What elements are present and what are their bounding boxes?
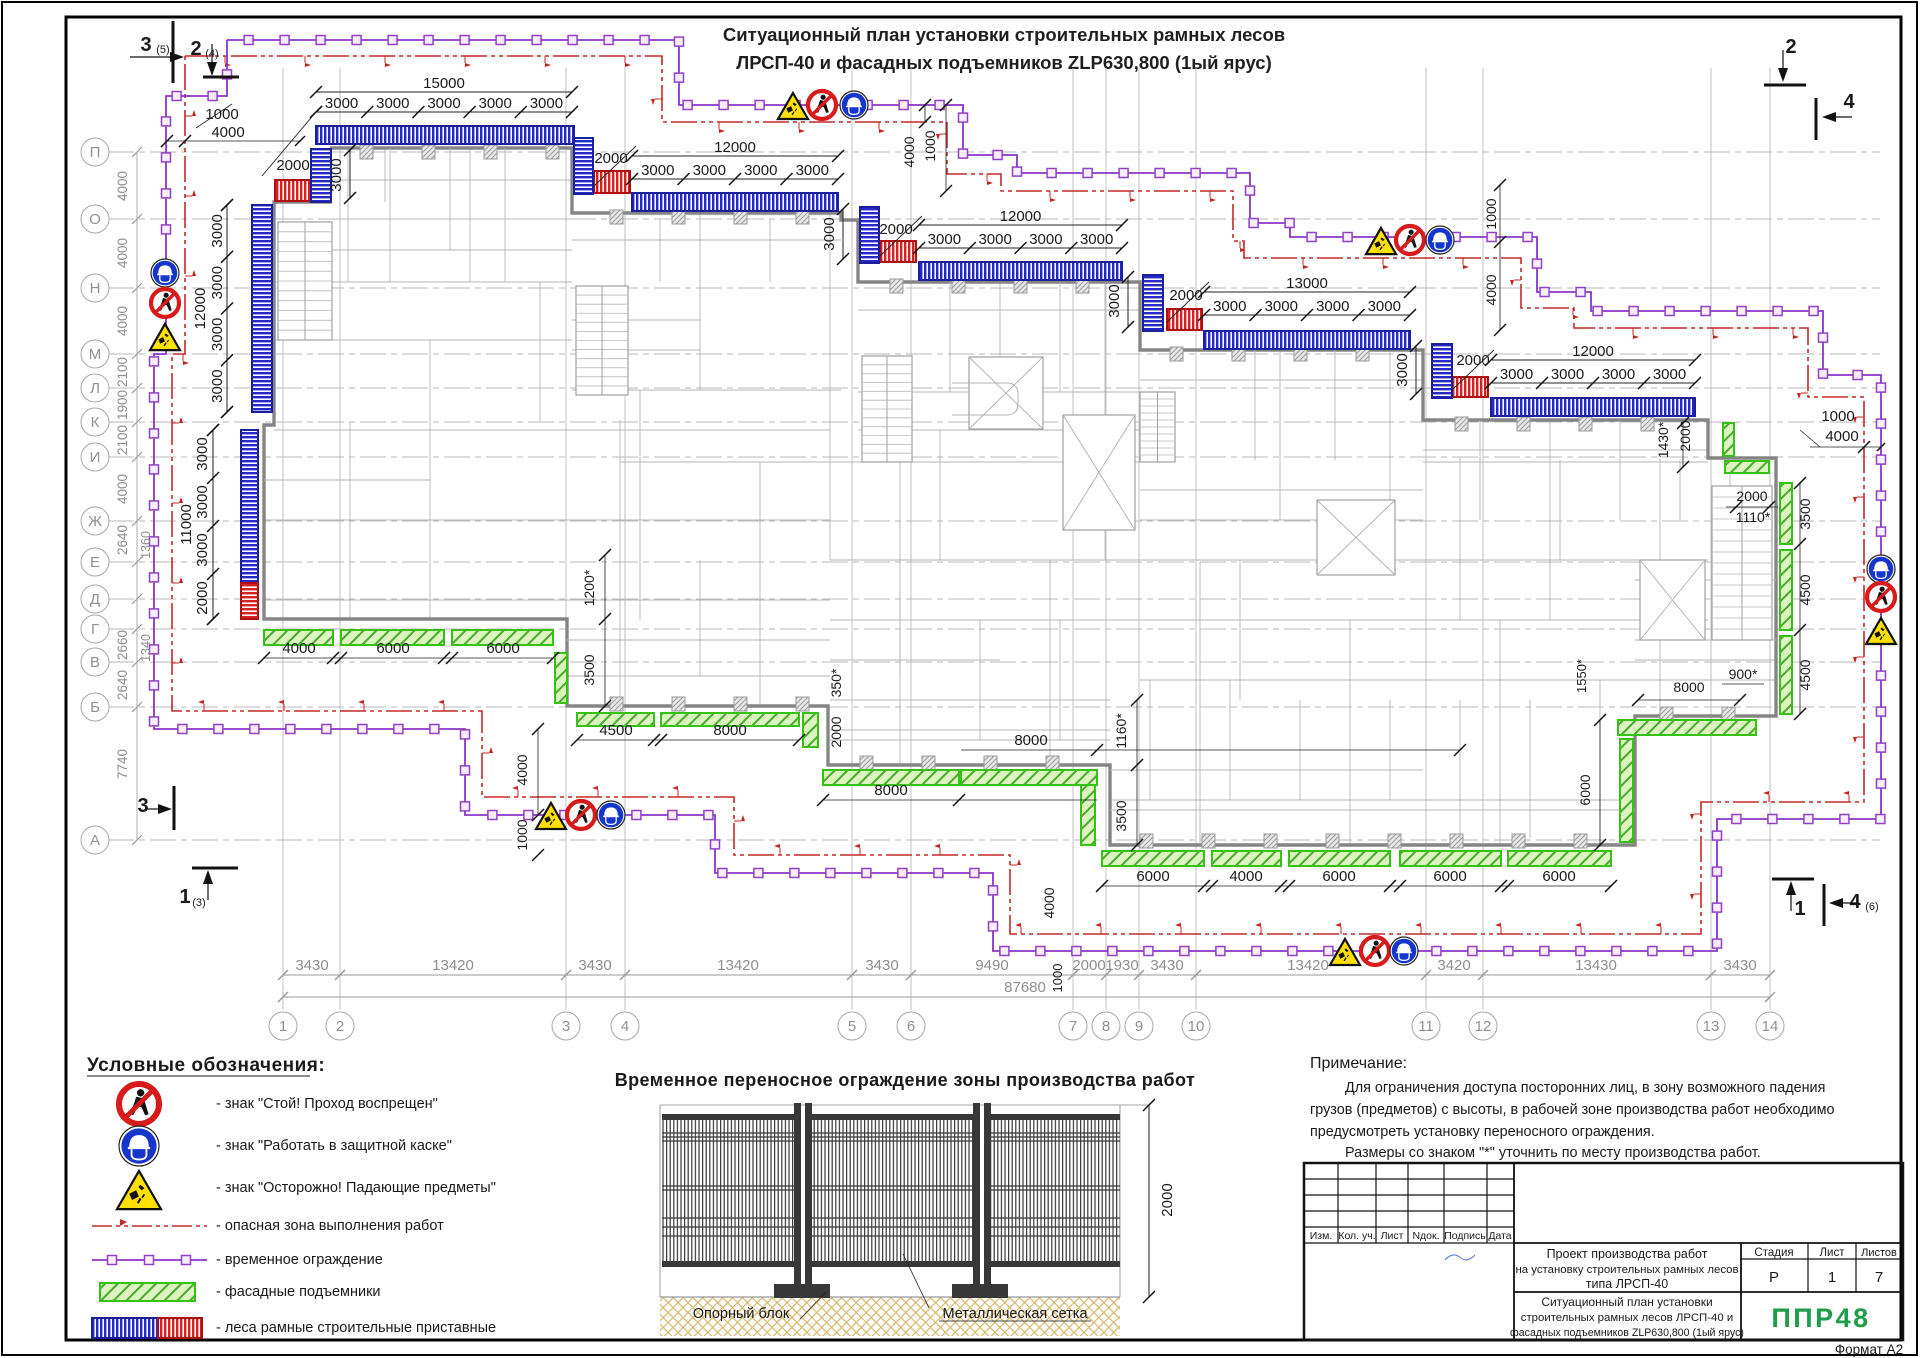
svg-text:5: 5 bbox=[848, 1018, 856, 1035]
svg-text:Для ограничения доступа постор: Для ограничения доступа посторонних лиц,… bbox=[1345, 1080, 1825, 1096]
svg-text:Опорный блок: Опорный блок bbox=[693, 1306, 790, 1322]
svg-text:8000: 8000 bbox=[1014, 732, 1047, 749]
svg-text:3000: 3000 bbox=[209, 266, 226, 299]
svg-text:3000: 3000 bbox=[1551, 366, 1584, 383]
svg-text:строительных рамных лесов ЛРСП: строительных рамных лесов ЛРСП-40 и bbox=[1521, 1312, 1733, 1324]
svg-text:3500: 3500 bbox=[1797, 498, 1813, 529]
svg-text:3000: 3000 bbox=[479, 95, 512, 112]
svg-text:12: 12 bbox=[1475, 1018, 1492, 1035]
svg-text:2: 2 bbox=[190, 38, 201, 60]
svg-text:(6): (6) bbox=[1865, 901, 1878, 913]
svg-text:87680: 87680 bbox=[1004, 979, 1046, 996]
svg-text:на установку строительных рамн: на установку строительных рамных лесов bbox=[1515, 1264, 1738, 1276]
svg-text:3000: 3000 bbox=[796, 162, 829, 179]
svg-text:2660: 2660 bbox=[115, 630, 130, 660]
svg-text:14: 14 bbox=[1762, 1018, 1779, 1035]
svg-text:13420: 13420 bbox=[717, 957, 759, 974]
svg-text:2000: 2000 bbox=[1677, 420, 1693, 451]
svg-text:8000: 8000 bbox=[713, 722, 746, 739]
svg-text:10: 10 bbox=[1188, 1018, 1205, 1035]
svg-text:Ситуационный план установки ст: Ситуационный план установки строительных… bbox=[723, 24, 1285, 45]
svg-text:4500: 4500 bbox=[599, 722, 632, 739]
svg-text:Условные обозначения:: Условные обозначения: bbox=[87, 1055, 325, 1076]
svg-text:13420: 13420 bbox=[1287, 957, 1329, 974]
svg-text:- опасная зона выполнения рабо: - опасная зона выполнения работ bbox=[216, 1218, 444, 1234]
svg-text:13000: 13000 bbox=[1286, 275, 1328, 292]
svg-text:Г: Г bbox=[91, 621, 99, 638]
svg-text:3000: 3000 bbox=[1500, 366, 1533, 383]
svg-text:1: 1 bbox=[1828, 1269, 1836, 1286]
svg-text:типа ЛРСП-40: типа ЛРСП-40 bbox=[1586, 1277, 1668, 1291]
svg-text:фасадных подъемников ZLP630,80: фасадных подъемников ZLP630,800 (1ый яру… bbox=[1510, 1327, 1744, 1339]
svg-text:6: 6 bbox=[907, 1018, 915, 1035]
svg-text:4000: 4000 bbox=[514, 754, 530, 785]
svg-text:6000: 6000 bbox=[1542, 868, 1575, 885]
svg-text:11: 11 bbox=[1418, 1018, 1434, 1035]
svg-text:3000: 3000 bbox=[1080, 231, 1113, 248]
svg-text:1000: 1000 bbox=[1050, 964, 1065, 993]
svg-text:2000: 2000 bbox=[828, 716, 844, 747]
svg-text:13430: 13430 bbox=[1575, 957, 1617, 974]
svg-text:Формат А2: Формат А2 bbox=[1835, 1342, 1903, 1357]
svg-text:13: 13 bbox=[1703, 1018, 1720, 1035]
svg-text:- временное ограждение: - временное ограждение bbox=[216, 1252, 383, 1268]
svg-text:4000: 4000 bbox=[282, 640, 315, 657]
svg-text:ППР48: ППР48 bbox=[1771, 1303, 1870, 1333]
svg-text:12000: 12000 bbox=[1572, 343, 1614, 360]
svg-text:3000: 3000 bbox=[821, 217, 838, 250]
svg-text:1: 1 bbox=[1794, 898, 1805, 920]
svg-text:4000: 4000 bbox=[901, 136, 917, 167]
svg-text:3000: 3000 bbox=[427, 95, 460, 112]
svg-text:3000: 3000 bbox=[328, 158, 345, 191]
svg-text:3000: 3000 bbox=[209, 369, 226, 402]
svg-text:4000: 4000 bbox=[1041, 887, 1057, 918]
svg-text:3: 3 bbox=[137, 795, 148, 817]
svg-text:3000: 3000 bbox=[209, 318, 226, 351]
svg-text:3000: 3000 bbox=[978, 231, 1011, 248]
svg-text:2000: 2000 bbox=[1159, 1183, 1176, 1216]
svg-text:2: 2 bbox=[1785, 36, 1796, 58]
svg-text:2640: 2640 bbox=[115, 525, 130, 555]
svg-text:4000: 4000 bbox=[115, 238, 130, 268]
svg-text:Р: Р bbox=[1769, 1269, 1779, 1286]
svg-text:- фасадные подъемники: - фасадные подъемники bbox=[216, 1284, 381, 1300]
svg-text:3500: 3500 bbox=[581, 654, 597, 685]
svg-text:3430: 3430 bbox=[1723, 957, 1756, 974]
svg-text:Проект производства работ: Проект производства работ bbox=[1547, 1247, 1708, 1261]
svg-text:9490: 9490 bbox=[975, 957, 1008, 974]
svg-text:8: 8 bbox=[1102, 1018, 1110, 1035]
svg-text:11000: 11000 bbox=[178, 504, 195, 545]
svg-text:грузов (предметов) с высоты, в: грузов (предметов) с высоты, в рабочей з… bbox=[1310, 1102, 1835, 1118]
svg-text:3000: 3000 bbox=[194, 533, 211, 566]
svg-text:3000: 3000 bbox=[641, 162, 674, 179]
svg-text:1: 1 bbox=[279, 1018, 287, 1035]
svg-text:предусмотреть установку перено: предусмотреть установку переносного огра… bbox=[1310, 1124, 1655, 1140]
svg-text:Б: Б bbox=[90, 699, 100, 716]
svg-text:900*: 900* bbox=[1729, 666, 1758, 682]
svg-text:350*: 350* bbox=[828, 668, 844, 697]
svg-text:3000: 3000 bbox=[530, 95, 563, 112]
svg-text:9: 9 bbox=[1135, 1018, 1143, 1035]
svg-text:Дата: Дата bbox=[1488, 1230, 1511, 1242]
svg-text:4000: 4000 bbox=[115, 306, 130, 336]
svg-text:1550*: 1550* bbox=[1574, 659, 1589, 693]
svg-text:6000: 6000 bbox=[1136, 868, 1169, 885]
svg-text:3: 3 bbox=[140, 34, 151, 56]
svg-text:6000: 6000 bbox=[1322, 868, 1355, 885]
svg-text:3000: 3000 bbox=[1602, 366, 1635, 383]
svg-text:3: 3 bbox=[562, 1018, 570, 1035]
svg-text:6000: 6000 bbox=[486, 640, 519, 657]
svg-text:2: 2 bbox=[336, 1018, 344, 1035]
svg-text:3420: 3420 bbox=[1437, 957, 1470, 974]
svg-text:К: К bbox=[91, 414, 100, 431]
svg-text:В: В bbox=[90, 654, 100, 671]
svg-text:6000: 6000 bbox=[1433, 868, 1466, 885]
svg-text:4: 4 bbox=[1849, 891, 1861, 913]
svg-text:8000: 8000 bbox=[1673, 679, 1704, 695]
svg-text:1200*: 1200* bbox=[581, 569, 597, 606]
svg-text:1360: 1360 bbox=[139, 531, 153, 559]
svg-text:3000: 3000 bbox=[1394, 353, 1411, 386]
svg-text:О: О bbox=[89, 211, 101, 228]
svg-text:Е: Е bbox=[90, 554, 100, 571]
svg-text:(3): (3) bbox=[192, 897, 205, 909]
svg-text:1930: 1930 bbox=[1105, 957, 1138, 974]
svg-text:2640: 2640 bbox=[115, 670, 130, 700]
svg-text:А: А bbox=[90, 832, 100, 849]
svg-text:Листов: Листов bbox=[1861, 1247, 1897, 1259]
svg-text:3000: 3000 bbox=[1368, 298, 1401, 315]
svg-text:1340: 1340 bbox=[139, 634, 153, 662]
svg-text:Ситуационный план установки: Ситуационный план установки bbox=[1541, 1295, 1712, 1309]
svg-text:3000: 3000 bbox=[1106, 284, 1123, 317]
svg-text:4: 4 bbox=[621, 1018, 629, 1035]
svg-text:4500: 4500 bbox=[1797, 659, 1813, 690]
svg-text:12000: 12000 bbox=[192, 288, 209, 330]
svg-text:12000: 12000 bbox=[714, 139, 756, 156]
svg-text:Д: Д bbox=[90, 591, 100, 608]
svg-text:2000: 2000 bbox=[1072, 957, 1105, 974]
svg-text:3000: 3000 bbox=[1653, 366, 1686, 383]
svg-text:4000: 4000 bbox=[1825, 428, 1858, 445]
svg-text:3000: 3000 bbox=[744, 162, 777, 179]
svg-text:6000: 6000 bbox=[1577, 774, 1593, 805]
svg-text:Временное переносное ограждени: Временное переносное ограждение зоны про… bbox=[615, 1070, 1195, 1090]
svg-text:7: 7 bbox=[1875, 1269, 1883, 1286]
svg-text:Размеры со знаком "*" уточнить: Размеры со знаком "*" уточнить по месту … bbox=[1345, 1145, 1761, 1161]
svg-text:3430: 3430 bbox=[1150, 957, 1183, 974]
svg-text:М: М bbox=[89, 346, 102, 363]
svg-text:13420: 13420 bbox=[432, 957, 474, 974]
svg-text:1000: 1000 bbox=[205, 106, 238, 123]
svg-text:1430*: 1430* bbox=[1655, 421, 1671, 458]
svg-text:1900: 1900 bbox=[115, 390, 130, 420]
svg-text:Л: Л bbox=[90, 380, 100, 397]
svg-text:3500: 3500 bbox=[1113, 800, 1129, 831]
svg-text:1000: 1000 bbox=[1483, 198, 1499, 229]
svg-text:1000: 1000 bbox=[1821, 408, 1854, 425]
svg-text:3000: 3000 bbox=[1029, 231, 1062, 248]
svg-text:Стадия: Стадия bbox=[1754, 1247, 1793, 1259]
svg-text:3000: 3000 bbox=[1213, 298, 1246, 315]
svg-text:Примечание:: Примечание: bbox=[1310, 1055, 1407, 1072]
svg-text:3000: 3000 bbox=[1265, 298, 1298, 315]
svg-text:Кол. уч.: Кол. уч. bbox=[1338, 1230, 1375, 1242]
svg-text:4500: 4500 bbox=[1797, 574, 1813, 605]
svg-text:3430: 3430 bbox=[865, 957, 898, 974]
svg-text:3430: 3430 bbox=[578, 957, 611, 974]
svg-text:(5): (5) bbox=[156, 44, 169, 56]
svg-text:1000: 1000 bbox=[922, 130, 938, 161]
svg-text:7: 7 bbox=[1069, 1018, 1077, 1035]
svg-text:4000: 4000 bbox=[115, 474, 130, 504]
svg-text:3000: 3000 bbox=[194, 485, 211, 518]
svg-text:2100: 2100 bbox=[115, 357, 130, 387]
svg-text:4000: 4000 bbox=[1483, 274, 1499, 305]
svg-text:Подпись: Подпись bbox=[1444, 1230, 1486, 1242]
svg-text:3000: 3000 bbox=[325, 95, 358, 112]
svg-text:3430: 3430 bbox=[295, 957, 328, 974]
svg-text:8000: 8000 bbox=[874, 782, 907, 799]
svg-text:2000: 2000 bbox=[276, 157, 309, 174]
svg-text:2000: 2000 bbox=[1169, 287, 1202, 304]
svg-text:3000: 3000 bbox=[209, 214, 226, 247]
svg-text:Н: Н bbox=[90, 280, 101, 297]
svg-text:6000: 6000 bbox=[376, 640, 409, 657]
svg-text:4: 4 bbox=[1843, 91, 1855, 113]
svg-text:- знак "Стой! Проход воспрещен: - знак "Стой! Проход воспрещен" bbox=[216, 1096, 438, 1112]
svg-text:1000: 1000 bbox=[514, 819, 530, 850]
svg-text:3000: 3000 bbox=[1316, 298, 1349, 315]
svg-text:- знак "Осторожно! Падающие пр: - знак "Осторожно! Падающие предметы" bbox=[216, 1180, 496, 1196]
svg-text:Nдок.: Nдок. bbox=[1412, 1230, 1439, 1242]
svg-text:Изм.: Изм. bbox=[1310, 1230, 1333, 1242]
svg-text:4000: 4000 bbox=[211, 124, 244, 141]
svg-text:Ж: Ж bbox=[88, 513, 102, 530]
svg-text:Лист: Лист bbox=[1820, 1247, 1846, 1259]
svg-text:3000: 3000 bbox=[928, 231, 961, 248]
svg-text:ЛРСП-40 и фасадных подъемников: ЛРСП-40 и фасадных подъемников ZLP630,80… bbox=[736, 52, 1272, 73]
svg-text:Лист: Лист bbox=[1381, 1230, 1404, 1242]
svg-text:12000: 12000 bbox=[1000, 208, 1042, 225]
svg-text:2100: 2100 bbox=[115, 425, 130, 455]
svg-text:3000: 3000 bbox=[194, 437, 211, 470]
svg-text:П: П bbox=[90, 144, 101, 161]
svg-text:4000: 4000 bbox=[1229, 868, 1262, 885]
svg-text:- знак "Работать в защитной ка: - знак "Работать в защитной каске" bbox=[216, 1138, 452, 1154]
svg-text:3000: 3000 bbox=[376, 95, 409, 112]
svg-text:15000: 15000 bbox=[423, 75, 465, 92]
svg-text:Металлическая сетка: Металлическая сетка bbox=[942, 1306, 1088, 1322]
svg-text:7740: 7740 bbox=[115, 749, 130, 779]
svg-text:2000: 2000 bbox=[194, 581, 211, 614]
svg-text:- леса рамные строительные при: - леса рамные строительные приставные bbox=[216, 1320, 496, 1336]
svg-text:4000: 4000 bbox=[115, 171, 130, 201]
svg-text:3000: 3000 bbox=[693, 162, 726, 179]
svg-text:2000: 2000 bbox=[1456, 352, 1489, 369]
svg-text:1160*: 1160* bbox=[1113, 713, 1129, 749]
svg-text:1: 1 bbox=[179, 886, 190, 908]
svg-text:И: И bbox=[90, 449, 101, 466]
